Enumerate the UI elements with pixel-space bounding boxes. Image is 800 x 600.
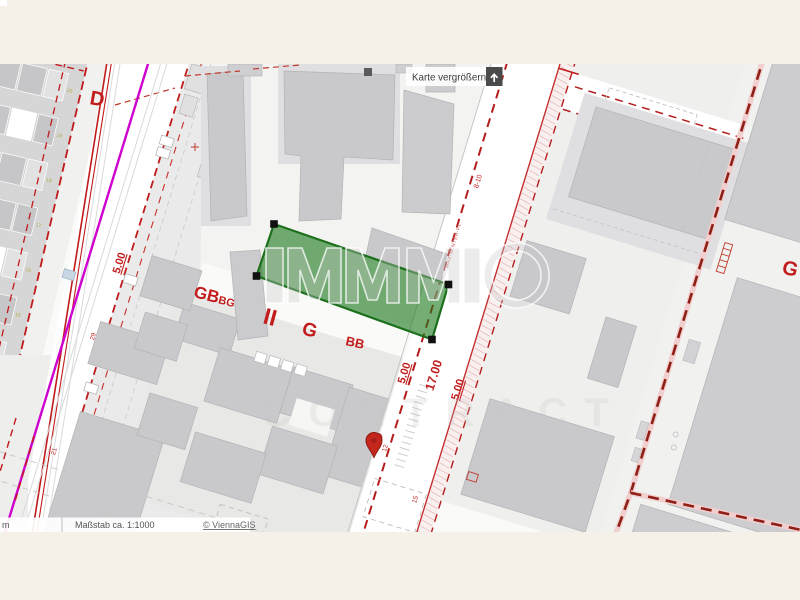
svg-text:CONTRACT: CONTRACT — [262, 391, 626, 435]
svg-text:© ViennaGIS: © ViennaGIS — [203, 520, 256, 530]
svg-text:Maßstab ca. 1:1000: Maßstab ca. 1:1000 — [75, 520, 155, 530]
svg-text:Karte vergrößern: Karte vergrößern — [412, 73, 486, 84]
svg-text:m: m — [2, 520, 10, 530]
